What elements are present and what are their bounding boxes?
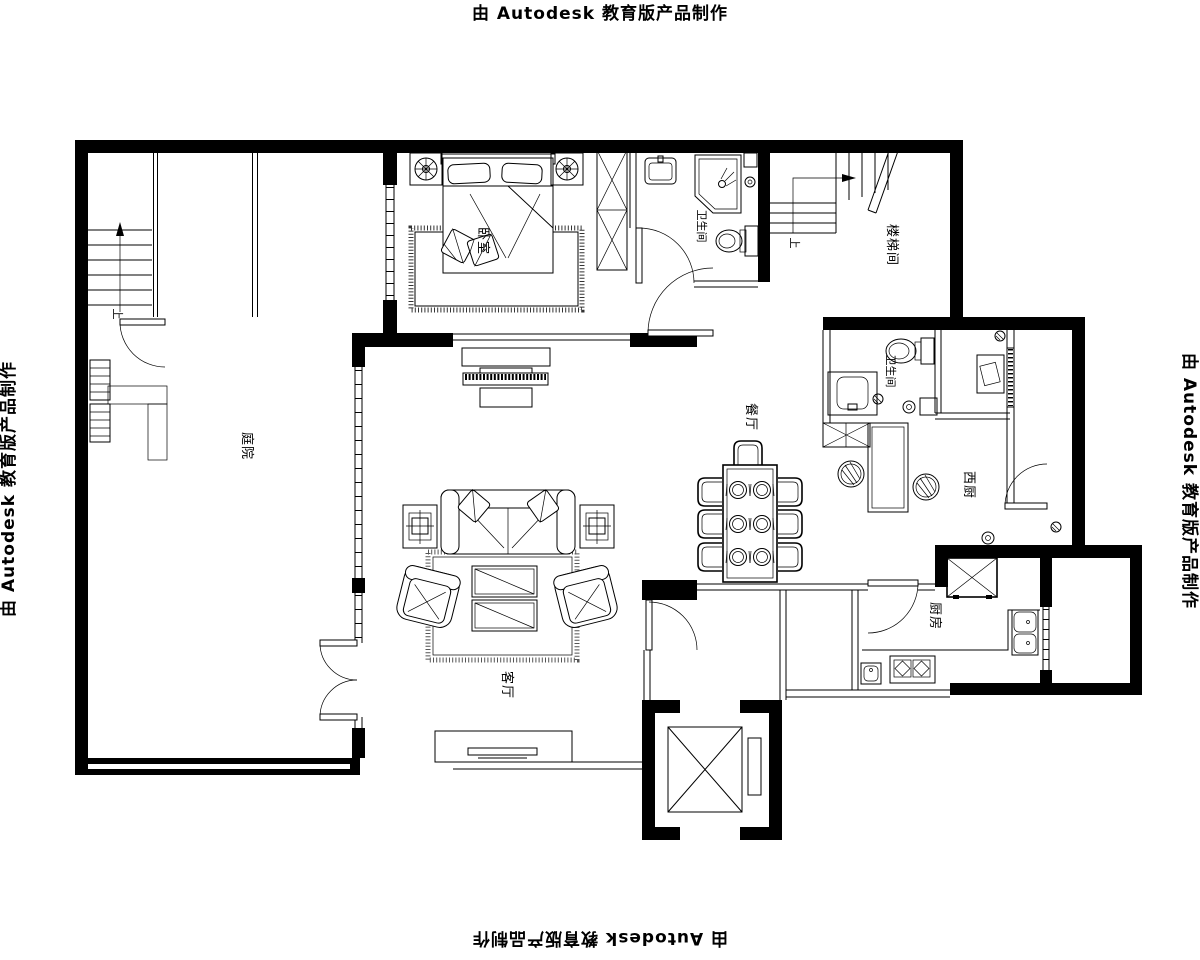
bedroom-hall-door: [648, 268, 713, 336]
living-furniture: [394, 489, 619, 762]
courtyard-stair-door: [120, 319, 165, 367]
french-doors: [320, 640, 357, 720]
coffee-table-1: [472, 566, 537, 597]
toilet-top: [716, 226, 758, 256]
tv-cabinet: [435, 731, 572, 762]
washer-zone-window: [1007, 348, 1014, 407]
washer: [977, 355, 1004, 393]
bed: [440, 154, 555, 273]
stairs-left: [88, 222, 167, 460]
x-cabinet: [823, 423, 870, 447]
room-label-bathroom-top: 卫生间: [695, 210, 709, 243]
kitchen-fixtures: [861, 558, 1040, 684]
watermark-right: 由 Autodesk 教育版产品制作: [1179, 353, 1200, 609]
room-label-west-kitchen: 西厨: [961, 471, 976, 499]
kitchen-east-window: [1043, 607, 1049, 670]
dining-set: [698, 441, 802, 582]
room-labels: 庭院 卧室 卫生间 楼梯间 卫生间 餐厅 西厨 厨房 客厅 上 上: [111, 210, 976, 700]
bathroom-top-door: [636, 228, 694, 283]
bedroom-furniture: [410, 150, 627, 310]
stairs-up-label-right: 上: [788, 238, 801, 249]
watermark-left: 由 Autodesk 教育版产品制作: [0, 361, 19, 617]
west-kitchen-furniture: [823, 423, 939, 512]
stairs-up-label-left: 上: [111, 309, 124, 320]
kitchen-door: [868, 580, 918, 633]
lobby-door: [646, 600, 697, 650]
watermark-bottom: 由 Autodesk 教育版产品制作: [472, 928, 728, 949]
coffee-table-2: [472, 600, 537, 631]
side-table-right: [580, 505, 614, 548]
room-label-living: 客厅: [499, 671, 515, 699]
sink-top: [645, 156, 676, 184]
floor-plan-page: 庭院 卧室 卫生间 楼梯间 卫生间 餐厅 西厨 厨房 客厅 上 上 由 Auto…: [0, 0, 1200, 960]
nightstand-right: [551, 153, 583, 185]
stove: [890, 656, 935, 683]
room-label-stairwell: 楼梯间: [884, 224, 899, 266]
double-sink: [1012, 610, 1038, 655]
watermark-top: 由 Autodesk 教育版产品制作: [472, 3, 728, 24]
range-shaft: [947, 558, 997, 599]
piano: [462, 348, 550, 407]
living-west-window: [355, 367, 362, 728]
room-label-courtyard: 庭院: [239, 432, 255, 460]
bedroom-west-window: [386, 185, 394, 300]
west-kitchen-door: [1005, 464, 1047, 509]
armchair-right: [552, 564, 619, 630]
stairs-right: [770, 148, 898, 233]
room-label-dining: 餐厅: [743, 403, 759, 431]
armchair-left: [394, 564, 461, 630]
shower: [695, 155, 741, 213]
nightstand-left: [410, 153, 442, 185]
walls: [75, 140, 1142, 775]
bar-counter: [868, 423, 908, 512]
bathroom-mid-fixtures: [828, 338, 1004, 415]
sofa: [441, 489, 575, 554]
room-label-kitchen: 厨房: [927, 602, 943, 630]
elevator: [642, 700, 782, 840]
vanity-mid: [828, 372, 877, 415]
kitchen-small-sink: [861, 663, 881, 684]
room-label-bedroom: 卧室: [475, 227, 491, 255]
room-label-bathroom-mid: 卫生间: [884, 355, 898, 388]
side-table-left: [403, 505, 437, 548]
wardrobe: [597, 150, 627, 270]
floor-plan-drawing: 庭院 卧室 卫生间 楼梯间 卫生间 餐厅 西厨 厨房 客厅 上 上 由 Auto…: [0, 0, 1200, 960]
